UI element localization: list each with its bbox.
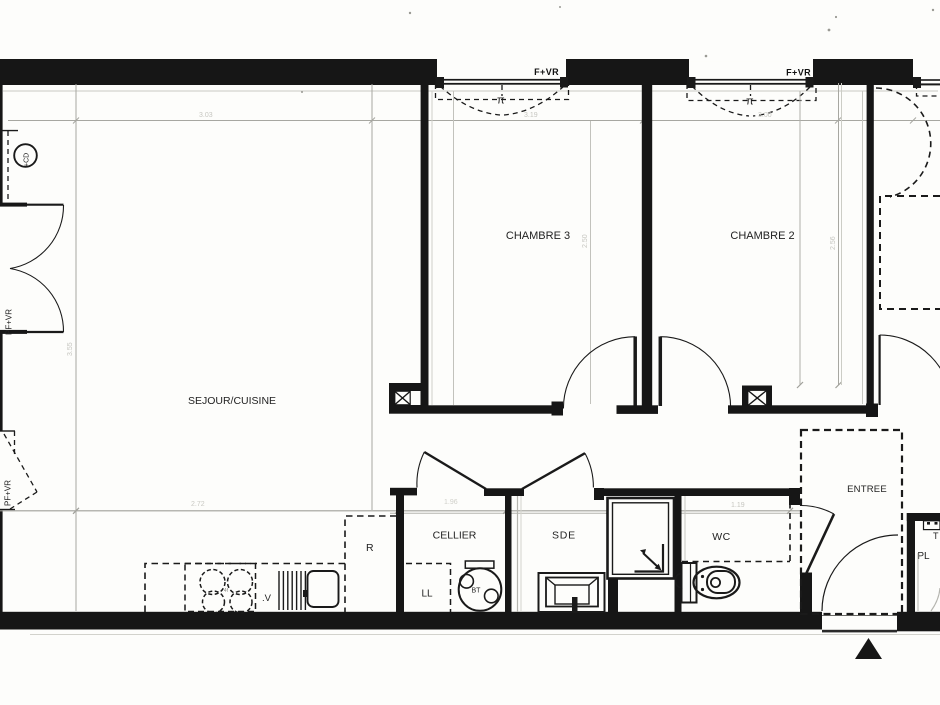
- svg-text:CHAMBRE 3: CHAMBRE 3: [506, 230, 570, 242]
- svg-text:PL: PL: [917, 551, 930, 562]
- svg-text:.V: .V: [262, 593, 272, 604]
- svg-text:F+VR: F+VR: [786, 68, 811, 78]
- svg-text:1.19: 1.19: [731, 502, 745, 509]
- svg-text:3.03: 3.03: [199, 112, 213, 119]
- svg-text:CHAMBRE 2: CHAMBRE 2: [730, 230, 794, 242]
- svg-text:SEJOUR/CUISINE: SEJOUR/CUISINE: [188, 395, 276, 407]
- svg-text:3.00: 3.00: [758, 112, 772, 119]
- svg-text:π: π: [746, 96, 754, 108]
- svg-text:3.55: 3.55: [67, 342, 74, 356]
- svg-text:2.56: 2.56: [830, 236, 837, 250]
- svg-text:2.50: 2.50: [582, 234, 589, 248]
- svg-text:PF+VR: PF+VR: [4, 480, 13, 506]
- svg-text:PF+VR: PF+VR: [5, 309, 14, 335]
- svg-text:CELLIER: CELLIER: [433, 530, 477, 542]
- svg-text:ENTREE: ENTREE: [847, 484, 887, 495]
- svg-text:WC: WC: [712, 531, 731, 543]
- svg-text:R: R: [366, 542, 374, 554]
- svg-text:BT: BT: [472, 588, 482, 595]
- svg-text:2.72: 2.72: [191, 501, 205, 508]
- svg-text:LL: LL: [422, 589, 434, 600]
- svg-text:+CD: +CD: [24, 153, 31, 167]
- svg-text:T: T: [933, 531, 939, 541]
- svg-text:3.19: 3.19: [524, 112, 538, 119]
- svg-text:4f: 4f: [224, 588, 229, 594]
- svg-text:SDE: SDE: [552, 530, 576, 542]
- svg-text:F+VR: F+VR: [534, 67, 559, 77]
- svg-text:1.96: 1.96: [444, 499, 458, 506]
- svg-text:π: π: [497, 95, 505, 107]
